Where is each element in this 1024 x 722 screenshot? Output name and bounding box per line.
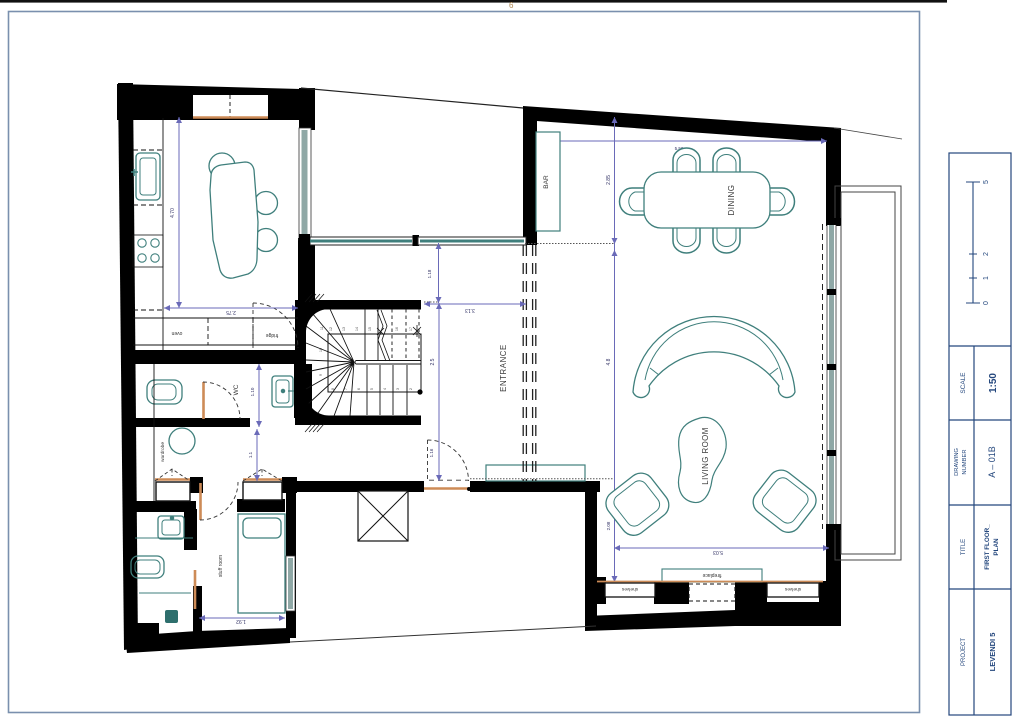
svg-text:6: 6: [509, 1, 514, 10]
svg-text:1.18: 1.18: [427, 269, 432, 278]
svg-text:16: 16: [395, 327, 399, 331]
svg-text:TITLE: TITLE: [961, 539, 967, 555]
svg-text:SCALE: SCALE: [960, 372, 967, 394]
svg-text:WC: WC: [233, 384, 240, 395]
svg-text:1.92: 1.92: [236, 618, 246, 624]
svg-text:8: 8: [331, 388, 335, 390]
svg-text:3: 3: [396, 388, 400, 390]
svg-text:NUMBER: NUMBER: [962, 449, 968, 474]
svg-text:1:50: 1:50: [988, 373, 999, 393]
svg-text:BAR: BAR: [543, 175, 550, 189]
svg-text:DINING: DINING: [727, 185, 736, 216]
svg-text:fridge: fridge: [266, 332, 279, 338]
svg-text:FIRST FLOOR_: FIRST FLOOR_: [984, 524, 991, 570]
svg-text:ENTRANCE: ENTRANCE: [499, 344, 508, 392]
svg-text:13: 13: [342, 327, 346, 331]
svg-text:4.8: 4.8: [606, 358, 612, 365]
svg-text:fireplace: fireplace: [702, 572, 721, 578]
svg-text:wardrobe: wardrobe: [160, 442, 166, 462]
svg-text:shelves: shelves: [621, 586, 638, 592]
svg-text:LEVENDI 5: LEVENDI 5: [988, 633, 997, 672]
svg-text:17: 17: [409, 327, 413, 331]
svg-text:12: 12: [329, 327, 333, 331]
svg-text:oven: oven: [171, 330, 182, 336]
svg-text:6: 6: [357, 388, 361, 390]
svg-text:1.16: 1.16: [429, 448, 434, 457]
svg-text:14: 14: [355, 327, 359, 331]
svg-text:DRAWING: DRAWING: [954, 448, 960, 476]
svg-text:3.13: 3.13: [465, 307, 475, 313]
svg-text:9: 9: [319, 374, 323, 376]
svg-text:0: 0: [983, 301, 990, 305]
svg-text:1.10: 1.10: [250, 387, 255, 396]
svg-text:4.70: 4.70: [170, 208, 176, 218]
svg-text:1.1: 1.1: [248, 451, 253, 458]
svg-text:7: 7: [344, 388, 348, 390]
svg-text:11: 11: [320, 326, 324, 330]
svg-text:PROJECT: PROJECT: [961, 638, 967, 666]
svg-text:stuff room: stuff room: [218, 555, 224, 577]
svg-text:10: 10: [319, 348, 323, 352]
svg-text:5: 5: [983, 180, 990, 184]
svg-text:2.5: 2.5: [430, 358, 436, 365]
svg-text:A – 01B: A – 01B: [987, 446, 997, 478]
svg-text:PLAN: PLAN: [993, 538, 1000, 556]
svg-text:2.08: 2.08: [606, 521, 611, 530]
svg-text:2: 2: [409, 388, 413, 390]
svg-text:2.85: 2.85: [606, 175, 612, 185]
svg-text:5.03: 5.03: [713, 549, 723, 555]
svg-text:LIVING ROOM: LIVING ROOM: [701, 427, 710, 485]
svg-text:1: 1: [983, 276, 990, 280]
svg-text:shelves: shelves: [784, 586, 801, 592]
svg-text:2.75: 2.75: [226, 309, 236, 315]
svg-text:15: 15: [368, 327, 372, 331]
svg-text:5: 5: [370, 388, 374, 390]
svg-text:4: 4: [383, 388, 387, 390]
svg-text:2: 2: [983, 252, 990, 256]
